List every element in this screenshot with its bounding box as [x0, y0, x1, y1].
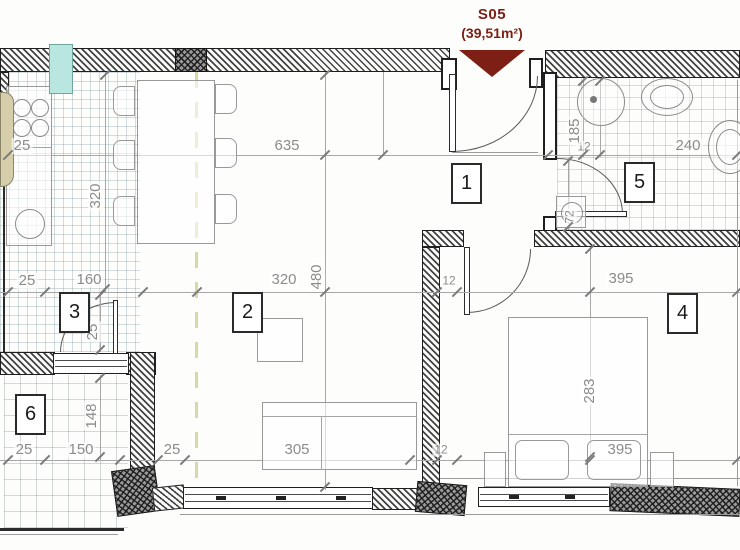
dimension-label: 240	[673, 138, 702, 154]
dimension-label: 25	[17, 273, 38, 289]
window-sill-line	[180, 514, 740, 515]
stove-burner	[13, 99, 31, 117]
dimension-label: 25	[12, 138, 33, 154]
wall-top-right	[545, 50, 740, 78]
bidet-bowl	[716, 129, 740, 165]
wall-terrace-right	[130, 352, 155, 472]
stove-burner	[31, 119, 49, 137]
dimension-label: 395	[606, 271, 635, 287]
wall-terrace-top-a	[0, 352, 55, 375]
dining-chair	[215, 138, 237, 168]
bed	[508, 317, 648, 487]
unit-area-label: (39,51m²)	[461, 25, 522, 41]
stove-burner	[31, 99, 49, 117]
wall-bottom-right-cross	[609, 483, 740, 517]
unit-title: S05	[478, 6, 506, 23]
dimension-label: 395	[605, 442, 634, 458]
wall-hall-bathroom-upper	[543, 72, 557, 160]
window-mullion-tick	[509, 495, 519, 499]
dining-chair	[215, 194, 237, 224]
window-mullion-tick	[216, 496, 226, 500]
washbasin	[577, 78, 625, 126]
wall-bedroom-top-left	[422, 230, 464, 247]
dining-chair	[113, 196, 135, 226]
glass-block-window	[49, 44, 73, 94]
bedroom-door-leaf	[464, 247, 470, 315]
room-number-2: 2	[232, 292, 263, 333]
living-room-window	[183, 487, 373, 509]
dimension-label: 283	[582, 376, 598, 405]
dimension-label: 12	[440, 275, 457, 288]
dimension-line	[383, 72, 384, 155]
sofa	[262, 402, 417, 470]
dining-chair	[113, 140, 135, 170]
dining-table	[137, 80, 215, 244]
dimension-line	[0, 155, 740, 156]
entrance-threshold	[452, 152, 538, 153]
nightstand	[484, 452, 506, 487]
wall-bedroom-top-right	[534, 230, 740, 247]
dimension-label: 185	[567, 116, 583, 145]
dimension-line	[105, 72, 106, 292]
window-mullion-tick	[336, 496, 346, 500]
floor-plan: S05 (39,51m²) 25635122402516032012395251…	[0, 0, 740, 550]
washbasin-drain	[590, 96, 597, 103]
entrance-marker-icon	[459, 50, 525, 77]
terrace-door-window	[53, 353, 129, 374]
entrance-door-leaf	[449, 74, 456, 152]
dimension-label: 25	[14, 442, 35, 458]
dining-chair	[113, 86, 135, 116]
dimension-label: 305	[282, 442, 311, 458]
terrace-bottom-edge-outer	[0, 534, 118, 535]
window-mullion-tick	[276, 496, 286, 500]
wall-top-beam	[175, 48, 207, 72]
kitchen-sink	[15, 209, 45, 239]
entrance-door-arc	[452, 76, 538, 152]
dining-chair	[215, 84, 237, 114]
toilet-bowl	[650, 85, 684, 109]
room-number-1: 1	[451, 163, 482, 204]
nightstand	[650, 452, 674, 487]
dimension-label: 320	[269, 272, 298, 288]
coffee-table	[257, 318, 303, 362]
room-number-5: 5	[624, 162, 655, 203]
bedroom-door-arc	[467, 249, 531, 313]
dimension-label: 320	[88, 181, 104, 210]
pillow	[515, 440, 569, 480]
dimension-label: 150	[66, 442, 95, 458]
dimension-label: 160	[74, 272, 103, 288]
terrace-door-leaf	[113, 300, 118, 354]
dimension-line	[0, 292, 740, 293]
dimension-line	[100, 375, 101, 460]
dimension-label: 635	[272, 138, 301, 154]
pier-window-left	[152, 484, 186, 511]
dimension-label: 480	[309, 262, 325, 291]
room-number-4: 4	[667, 293, 698, 334]
bedroom-window	[478, 487, 610, 507]
pier-bottom-cross	[415, 481, 468, 516]
window-mullion-tick	[565, 495, 575, 499]
dimension-label: 25	[162, 442, 183, 458]
terrace-bottom-edge	[0, 528, 124, 531]
room-number-3: 3	[59, 292, 90, 333]
dimension-label: 148	[84, 401, 100, 430]
stove-burner	[13, 119, 31, 137]
room-number-6: 6	[15, 394, 46, 435]
